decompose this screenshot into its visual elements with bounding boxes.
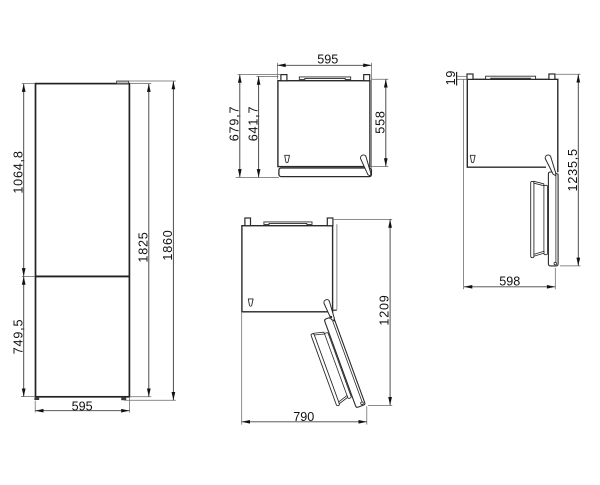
svg-text:790: 790 xyxy=(293,410,314,424)
svg-text:598: 598 xyxy=(499,275,520,289)
svg-text:1209: 1209 xyxy=(377,294,391,325)
svg-text:558: 558 xyxy=(374,110,388,133)
svg-text:679,7: 679,7 xyxy=(227,106,241,142)
svg-text:1860: 1860 xyxy=(161,229,175,260)
svg-text:595: 595 xyxy=(317,53,338,67)
svg-text:641,7: 641,7 xyxy=(247,106,261,142)
svg-text:19: 19 xyxy=(444,70,458,86)
svg-text:595: 595 xyxy=(72,399,93,413)
svg-text:1064,8: 1064,8 xyxy=(11,150,25,193)
svg-text:749,5: 749,5 xyxy=(11,319,25,355)
svg-text:1235,5: 1235,5 xyxy=(566,148,580,191)
svg-text:1825: 1825 xyxy=(136,231,150,262)
